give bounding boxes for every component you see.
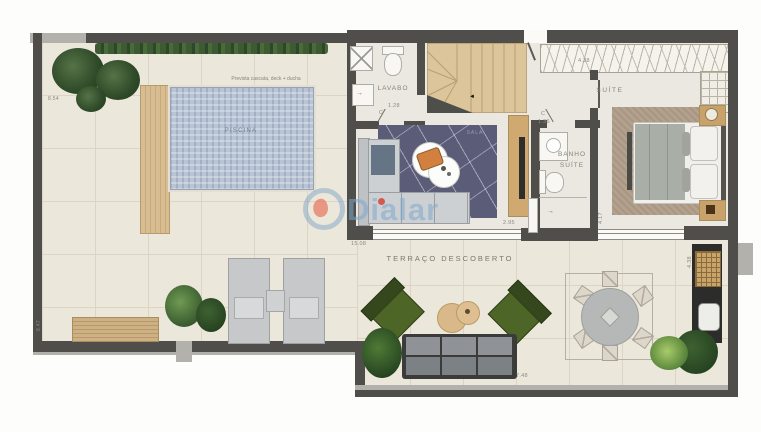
dim-terrace-east: 4.38 [687, 256, 693, 268]
watermark-text: Dialar [347, 192, 439, 228]
dim-suite-top: 4.38 [578, 58, 590, 64]
fern-icon [650, 336, 688, 370]
terrace-pillar [176, 341, 192, 362]
table-decor-dot [465, 309, 470, 314]
dining-chair [602, 345, 618, 361]
nightstand-decor [706, 205, 715, 214]
stairs [427, 43, 527, 113]
wall-bottom-left-outline [33, 352, 365, 355]
room-label-lavabo: LAVABO [363, 85, 423, 92]
room-label-sala: SALA [458, 130, 492, 136]
decor-dot [447, 172, 451, 176]
sun-lounger [228, 258, 270, 344]
lounger-cushion [234, 297, 264, 319]
door-mark-banho: C [541, 111, 545, 117]
wall-left [33, 33, 42, 352]
wall-right-stub [738, 243, 753, 275]
dim-terrace-left: 15.08 [351, 241, 366, 247]
grill-grate-icon [695, 251, 721, 287]
garden-bench [72, 317, 159, 342]
bed-pillow [690, 126, 718, 161]
suite-door-leaf [598, 80, 600, 108]
plant-icon [196, 298, 226, 332]
pool-note: Prevista cascata, deck + ducha [210, 76, 322, 82]
pergola-hatch [540, 44, 735, 73]
sofa-back-cushions [406, 337, 513, 355]
dim-banho: 1.36 [538, 119, 550, 125]
suite-door-gap [590, 80, 598, 108]
tv-icon [519, 137, 525, 199]
grill-sink-icon [698, 303, 720, 331]
toilet-icon [384, 53, 402, 76]
dining-chair [602, 271, 618, 287]
dim-suite-west: 4.17 [598, 212, 604, 224]
watermark-logo-icon [303, 188, 345, 230]
room-label-banho-2: SUÍTE [551, 162, 593, 169]
side-table [266, 290, 285, 312]
dim-lavabo: 1.28 [388, 103, 400, 109]
hedge [95, 43, 328, 54]
pool-deck [140, 85, 170, 234]
bed-blanket [635, 124, 685, 200]
door-mark-lavabo: C [379, 110, 383, 116]
shower-divider [539, 197, 587, 198]
dim-sala-south: 2.95 [503, 220, 515, 226]
floorplan-canvas: PISCINA Prevista cascata, deck + ducha →… [0, 0, 761, 432]
wall-right [728, 30, 738, 397]
open-door-leaf [528, 198, 538, 233]
wall-bottom [355, 390, 738, 397]
headboard [721, 124, 726, 200]
room-label-piscina: PISCINA [196, 128, 286, 134]
room-label-terraco: TERRAÇO DESCOBERTO [375, 254, 525, 263]
shower-head-icon: → [547, 208, 554, 215]
plant-icon [362, 328, 402, 378]
dim-left-lower: 8.47 [36, 320, 42, 331]
terrace-sofa [402, 334, 517, 379]
room-label-banho-1: BANHO [551, 151, 593, 158]
bed-foot-bench [627, 132, 632, 190]
sink-arrow-icon: → [356, 90, 363, 97]
sofa-seat-cushions [406, 357, 513, 375]
bed-pillow [690, 164, 718, 199]
bed-accent-pillow [682, 168, 690, 192]
bath-toilet-bowl [545, 172, 564, 193]
stair-direction-icon: ◄ [469, 94, 475, 100]
shower-box-icon [350, 46, 373, 71]
wall-lavabo-south-a [347, 121, 379, 129]
window-suite [598, 229, 684, 240]
bed-accent-pillow [682, 132, 690, 156]
wall-south-seg-a [347, 226, 373, 240]
entry-door-gap [524, 30, 547, 43]
sun-lounger [283, 258, 325, 344]
dim-left-upper: 8.54 [48, 96, 59, 102]
sliding-door-sala [373, 229, 521, 240]
wall-south-seg-c [684, 226, 731, 240]
lounger-cushion [289, 297, 319, 319]
lamp-icon [705, 108, 718, 121]
sofa-throw [371, 145, 395, 175]
watermark-logo-blob [311, 197, 330, 218]
dim-terrace-south: 7.48 [516, 373, 528, 379]
palm-tree-icon [76, 86, 106, 112]
pool [168, 85, 316, 192]
room-label-suite: SUÍTE [585, 87, 635, 94]
decor-dot [441, 166, 446, 171]
